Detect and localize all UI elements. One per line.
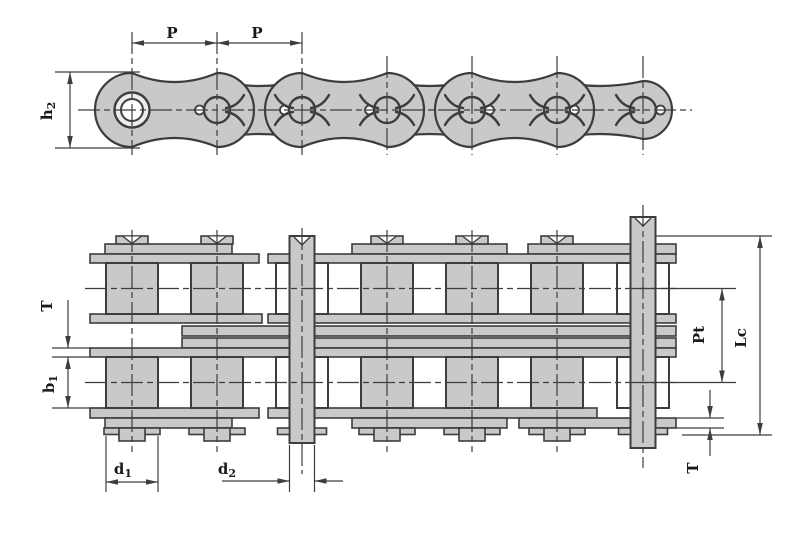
plate-edge-bar xyxy=(182,338,676,348)
label-pitch-left: P xyxy=(166,24,177,42)
label-pin-length: Lc xyxy=(732,328,750,348)
roller-chain-drawing: P P h2 T b1 d1 d2 Pt Lc T xyxy=(0,0,800,533)
dimension-arrowhead xyxy=(290,40,302,46)
dimension-arrowhead xyxy=(707,406,713,418)
dimension-arrowhead xyxy=(132,40,144,46)
pin-side-washer xyxy=(656,428,668,435)
label-inner-width: b1 xyxy=(40,375,60,393)
plate-edge-bar xyxy=(268,408,597,418)
pin-side-washer xyxy=(278,428,290,435)
plate-edge-bar xyxy=(90,314,262,323)
label-plate-height: h2 xyxy=(38,102,58,121)
plate-edge-bar xyxy=(90,348,676,357)
plate-edge-bar xyxy=(90,254,259,263)
chain-plan-view xyxy=(85,205,676,474)
plate-edge-bar xyxy=(352,418,507,428)
dimension-arrowhead xyxy=(65,336,71,348)
chain-side-view xyxy=(78,32,692,155)
dimension-arrowhead xyxy=(719,371,725,383)
dimension-arrowhead xyxy=(106,479,118,485)
dimension-arrowhead xyxy=(67,136,73,148)
dimension-arrowhead xyxy=(217,40,229,46)
label-pitch-right: P xyxy=(251,24,262,42)
dimension-arrowhead xyxy=(719,289,725,301)
dimension-arrowhead xyxy=(146,479,158,485)
plate-edge-bar xyxy=(90,408,259,418)
dimension-arrowhead xyxy=(757,236,763,248)
dimension-arrowhead xyxy=(315,478,327,484)
label-plate-thickness-right: T xyxy=(684,462,702,474)
plate-edge-bar xyxy=(182,326,676,336)
dimension-arrowhead xyxy=(205,40,217,46)
label-roller-diameter: d1 xyxy=(114,460,132,480)
dimension-arrowhead xyxy=(67,72,73,84)
dimension-arrowhead xyxy=(278,478,290,484)
label-transverse-pitch: Pt xyxy=(690,326,708,344)
drawing-canvas: P P h2 T b1 d1 d2 Pt Lc T xyxy=(0,0,800,533)
dimension-arrowhead xyxy=(65,396,71,408)
label-plate-thickness-left: T xyxy=(38,300,56,312)
plate-edge-bar xyxy=(105,418,232,428)
dimension-arrowhead xyxy=(707,428,713,440)
dimension-arrowhead xyxy=(65,357,71,369)
plate-edge-bar xyxy=(105,244,232,254)
pin-side-washer xyxy=(315,428,327,435)
plate-edge-bar xyxy=(352,244,507,254)
label-pin-diameter: d2 xyxy=(218,460,236,480)
dimension-arrowhead xyxy=(757,423,763,435)
pin-side-washer xyxy=(619,428,631,435)
